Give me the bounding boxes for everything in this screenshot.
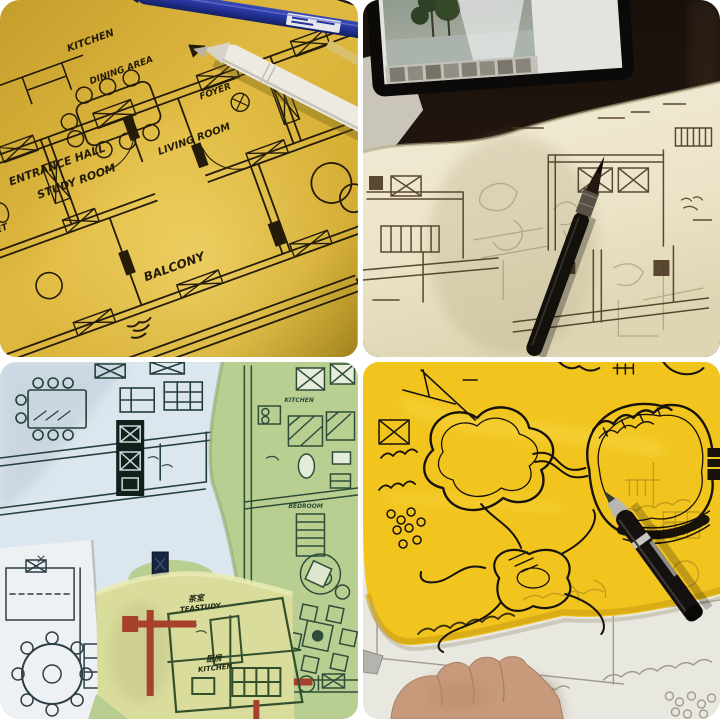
label-green-kitchen: KITCHEN bbox=[284, 397, 314, 404]
photo-landscape-plan-yellow bbox=[363, 362, 720, 719]
layered-plans-svg: KITCHEN BEDROOM bbox=[0, 362, 358, 719]
label-green-bedroom: BEDROOM bbox=[288, 503, 322, 510]
right-edge-sketch-fragment bbox=[707, 448, 720, 480]
landscape-plan-svg bbox=[363, 362, 720, 719]
label-kitchen-cn: 厨房 bbox=[205, 653, 224, 664]
photo-collage: KITCHEN DINING AREA FOYER TOILET ENTRANC… bbox=[0, 0, 720, 719]
photo-layered-plan-sheets: KITCHEN BEDROOM bbox=[0, 362, 358, 719]
photo-sepia-sketch-desk bbox=[363, 0, 720, 357]
floorplan-sketch-svg: KITCHEN DINING AREA FOYER TOILET ENTRANC… bbox=[0, 0, 358, 357]
label-tea-study-cn: 茶室 bbox=[188, 593, 207, 604]
photo-floorplan-yellow-trace: KITCHEN DINING AREA FOYER TOILET ENTRANC… bbox=[0, 0, 358, 357]
white-plan-paper bbox=[0, 540, 104, 719]
sepia-sketch-svg bbox=[363, 0, 720, 357]
